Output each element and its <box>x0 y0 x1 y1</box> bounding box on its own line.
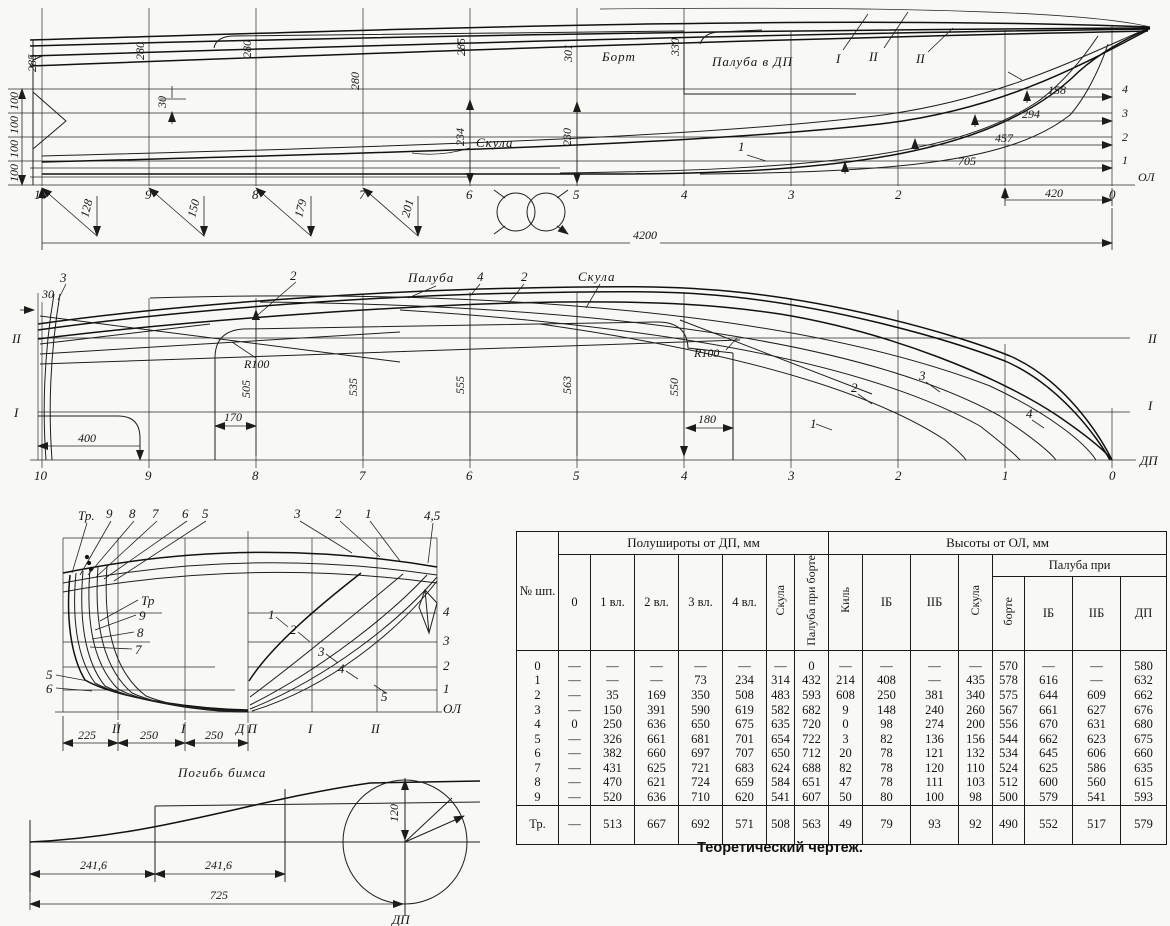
station-6: 6 <box>466 187 473 202</box>
offset-cell: — <box>863 650 911 673</box>
offset-cell: 326 <box>591 732 635 747</box>
col-header-3vl: 3 вл. <box>679 555 723 651</box>
offset-cell: 670 <box>1025 717 1073 732</box>
offset-cell: 625 <box>1025 761 1073 776</box>
offset-cell: 593 <box>795 688 829 703</box>
offset-cell: — <box>635 673 679 688</box>
offset-cell: 93 <box>911 805 959 844</box>
col-header-1b: IБ <box>863 555 911 651</box>
offset-cell: — <box>559 688 591 703</box>
dim-128: 128 <box>77 198 95 219</box>
offset-cell: 517 <box>1073 805 1121 844</box>
table-row: 9—52063671062054160750801009850057954159… <box>517 790 1167 805</box>
offset-cell: — <box>635 650 679 673</box>
offset-cell: 82 <box>863 732 911 747</box>
offset-cell: — <box>1025 650 1073 673</box>
hb-station-8: 8 <box>252 468 259 483</box>
radius-label-1: R100 <box>243 357 269 371</box>
bp-bottom-dp: Д П <box>234 721 259 736</box>
offset-cell: 620 <box>723 790 767 805</box>
offset-cell: — <box>591 673 635 688</box>
bp-bottom-I-left: I <box>180 721 186 736</box>
offset-cell: 659 <box>723 775 767 790</box>
bp-top-7: 7 <box>152 506 159 521</box>
offset-cell: — <box>559 703 591 718</box>
offset-cell: — <box>829 650 863 673</box>
station-3: 3 <box>787 187 795 202</box>
half-breadth-drawing: Палуба 4 2 Скула 2 3 30 R100 R100 505 53… <box>0 258 1170 494</box>
offset-cell: 78 <box>863 746 911 761</box>
dim-330: 330 <box>668 38 682 57</box>
col-header-deck-at-side-hw: Палуба при борте <box>795 555 829 651</box>
hb-station-4: 4 <box>681 468 688 483</box>
table-row: 3—15039159061958268291482402605676616276… <box>517 703 1167 718</box>
deck-subgroup-header: Палуба при <box>993 555 1167 577</box>
curve-label-4: 4 <box>1026 406 1033 421</box>
dim-170: 170 <box>224 410 242 424</box>
offsets-table-body: 0——————0————570——5801———7323431443221440… <box>517 650 1167 844</box>
offset-cell: 483 <box>767 688 795 703</box>
offset-cell: 627 <box>1073 703 1121 718</box>
bp-bottom-I-right: I <box>307 721 313 736</box>
label-paluba-dp: Палуба в ДП <box>711 54 794 69</box>
offset-cell: 661 <box>635 732 679 747</box>
curve-label-1: 1 <box>810 416 817 431</box>
left-butt-I: I <box>13 405 19 420</box>
offset-cell: — <box>559 805 591 844</box>
hb-station-1: 1 <box>1002 468 1009 483</box>
offset-cell: 470 <box>591 775 635 790</box>
offset-cell: 645 <box>1025 746 1073 761</box>
offset-cell: — <box>559 650 591 673</box>
offset-cell: 660 <box>635 746 679 761</box>
offset-cell: 79 <box>863 805 911 844</box>
offset-cell: 632 <box>1121 673 1167 688</box>
half-breadth-labels: Палуба 4 2 Скула 2 3 30 R100 R100 505 53… <box>11 268 1159 483</box>
col-header-0: 0 <box>559 555 591 651</box>
col-header-skula-h: Скула <box>959 555 993 651</box>
offset-cell: 593 <box>1121 790 1167 805</box>
sheer-labels: 285 280 280 280 285 301 330 100 100 100 … <box>7 38 1155 242</box>
offset-cell: 381 <box>911 688 959 703</box>
offset-cell: 625 <box>635 761 679 776</box>
right-butt-II: II <box>1147 331 1157 346</box>
dim-201: 201 <box>398 198 416 219</box>
col-header-1vl: 1 вл. <box>591 555 635 651</box>
col-header-deck-1b: IБ <box>1025 577 1073 650</box>
offset-cell: 490 <box>993 805 1025 844</box>
station-cell: 5 <box>517 732 559 747</box>
station-0: 0 <box>1109 187 1116 202</box>
offset-cell: 240 <box>911 703 959 718</box>
label-4: 4 <box>477 269 484 284</box>
col-header-deck-2b: IIБ <box>1073 577 1121 650</box>
offset-cell: 250 <box>863 688 911 703</box>
figure-caption: Теоретический чертеж. <box>600 840 960 856</box>
camber-dim-3: 725 <box>210 888 228 902</box>
station-cell: 2 <box>517 688 559 703</box>
station-column-header: № шп. <box>517 532 559 651</box>
offset-cell: 169 <box>635 688 679 703</box>
dim-550: 550 <box>667 378 681 396</box>
offset-cell: 111 <box>911 775 959 790</box>
offset-cell: 150 <box>591 703 635 718</box>
offset-cell: 47 <box>829 775 863 790</box>
offset-cell: 675 <box>1121 732 1167 747</box>
offset-cell: 635 <box>1121 761 1167 776</box>
offset-cell: 200 <box>959 717 993 732</box>
offset-cell: 608 <box>829 688 863 703</box>
table-group-header-row: № шп. Полушироты от ДП, мм Высоты от ОЛ,… <box>517 532 1167 555</box>
bp-top-8: 8 <box>129 506 136 521</box>
dim-179: 179 <box>291 198 309 219</box>
table-row: 7—43162572168362468882781201105246255866… <box>517 761 1167 776</box>
offset-cell: 688 <box>795 761 829 776</box>
label-skula-plan: Скула <box>578 269 616 284</box>
dim-555: 555 <box>453 376 467 394</box>
table-row: 5—32666168170165472238213615654466262367… <box>517 732 1167 747</box>
offset-cell: 578 <box>993 673 1025 688</box>
offset-cell: 720 <box>795 717 829 732</box>
offset-cell: 609 <box>1073 688 1121 703</box>
offset-cell: 35 <box>591 688 635 703</box>
offset-cell: 520 <box>591 790 635 805</box>
bp-lower-6: 6 <box>46 681 53 696</box>
bp-wl-2: 2 <box>443 658 450 673</box>
dim-150: 150 <box>184 198 202 219</box>
offset-cell: 644 <box>1025 688 1073 703</box>
wl-label-1: 1 <box>1122 153 1128 167</box>
offset-cell: 692 <box>679 805 723 844</box>
offset-cell: 701 <box>723 732 767 747</box>
bp-curve-2: 2 <box>290 622 297 637</box>
offset-cell: 78 <box>863 761 911 776</box>
col-header-keel-label: Киль <box>839 587 852 613</box>
offset-cell: 500 <box>993 790 1025 805</box>
offset-cell: 103 <box>959 775 993 790</box>
bp-wl-ol: ОЛ <box>443 701 462 716</box>
dim-280a: 280 <box>133 42 147 60</box>
offset-cell: 570 <box>993 650 1025 673</box>
offset-cell: 0 <box>795 650 829 673</box>
table-row: 4025063665067563572009827420055667063168… <box>517 717 1167 732</box>
offset-cell: 73 <box>679 673 723 688</box>
offset-cell: 156 <box>959 732 993 747</box>
offset-cell: 132 <box>959 746 993 761</box>
offset-cell: 524 <box>993 761 1025 776</box>
offset-cell: 580 <box>1121 650 1167 673</box>
offset-cell: 513 <box>591 805 635 844</box>
bp-dim-250a: 250 <box>140 728 158 742</box>
offset-cell: 234 <box>723 673 767 688</box>
hb-station-0: 0 <box>1109 468 1116 483</box>
label-2: 2 <box>521 269 528 284</box>
hb-station-7: 7 <box>359 468 366 483</box>
camber-lines <box>30 778 480 916</box>
offset-cell: — <box>559 775 591 790</box>
offset-cell: 616 <box>1025 673 1073 688</box>
offset-cell: 98 <box>863 717 911 732</box>
offset-cell: 50 <box>829 790 863 805</box>
col-header-deck-dp: ДП <box>1121 577 1167 650</box>
offset-cell: 582 <box>767 703 795 718</box>
label-skula-sheer: Скула <box>476 135 514 150</box>
label-curve3-left: 3 <box>59 270 67 285</box>
offset-cell: 631 <box>1073 717 1121 732</box>
bp-inner-8: 8 <box>137 625 144 640</box>
offset-cell: 80 <box>863 790 911 805</box>
col-header-skula-hw-label: Скула <box>774 585 787 615</box>
offset-cell: 697 <box>679 746 723 761</box>
bp-curve-3: 3 <box>317 644 325 659</box>
label-bort: Борт <box>601 49 636 64</box>
offset-cell: 431 <box>591 761 635 776</box>
dim-4200: 4200 <box>633 228 657 242</box>
dim-100b: 100 <box>7 116 21 134</box>
offset-cell: 552 <box>1025 805 1073 844</box>
offset-cell: 571 <box>723 805 767 844</box>
offset-cell: 78 <box>863 775 911 790</box>
offset-cell: 382 <box>591 746 635 761</box>
baseline-label: ОЛ <box>1138 170 1155 184</box>
dim-563: 563 <box>560 376 574 394</box>
body-plan-drawing: Тр. 9 8 7 6 5 3 2 1 4,5 Тр 9 8 7 5 6 1 2… <box>0 495 500 795</box>
beam-camber-drawing: Погибь бимса 241,6 241,6 725 120 ДП <box>0 762 500 926</box>
camber-title: Погибь бимса <box>177 765 266 780</box>
bp-wl-4: 4 <box>443 604 450 619</box>
col-header-deck-at-side-hw-label: Палуба при борте <box>805 555 818 646</box>
dim-285b: 285 <box>454 38 468 56</box>
bp-top-45: 4,5 <box>424 508 441 523</box>
dim-294: 294 <box>1022 107 1040 121</box>
offset-cell: 98 <box>959 790 993 805</box>
offset-cell: 623 <box>1073 732 1121 747</box>
offset-cell: 636 <box>635 790 679 805</box>
curve-label-2: 2 <box>851 380 858 395</box>
hb-station-2: 2 <box>895 468 902 483</box>
dim-400: 400 <box>78 431 96 445</box>
offset-cell: — <box>679 650 723 673</box>
camber-dim-1: 241,6 <box>80 858 107 872</box>
label-butt-II: II <box>868 49 878 64</box>
offset-cell: 541 <box>767 790 795 805</box>
bp-dim-250b: 250 <box>205 728 223 742</box>
col-header-2b: IIБ <box>911 555 959 651</box>
offset-cell: — <box>1073 650 1121 673</box>
label-curve2-left: 2 <box>290 268 297 283</box>
col-header-skula-h-label: Скула <box>969 585 982 615</box>
dim-285a: 285 <box>25 54 39 72</box>
dim-301: 301 <box>561 44 575 63</box>
station-7: 7 <box>359 187 366 202</box>
offset-cell: 110 <box>959 761 993 776</box>
dim-158: 158 <box>1048 83 1066 97</box>
offset-cell: 121 <box>911 746 959 761</box>
sheer-hull-lines <box>30 8 1150 185</box>
offset-cell: 586 <box>1073 761 1121 776</box>
offset-cell: 541 <box>1073 790 1121 805</box>
station-cell: 6 <box>517 746 559 761</box>
bp-wl-3: 3 <box>442 633 450 648</box>
bp-lower-5: 5 <box>46 667 53 682</box>
offset-cell: 556 <box>993 717 1025 732</box>
offset-cell: — <box>591 650 635 673</box>
col-header-4vl: 4 вл. <box>723 555 767 651</box>
col-header-borte: борте <box>993 577 1025 650</box>
offset-cell: 435 <box>959 673 993 688</box>
table-row: 6—38266069770765071220781211325346456066… <box>517 746 1167 761</box>
offset-cell: 624 <box>767 761 795 776</box>
offset-cell: 136 <box>911 732 959 747</box>
dim-535: 535 <box>346 378 360 396</box>
offset-cell: — <box>559 761 591 776</box>
offset-cell: 0 <box>559 717 591 732</box>
offset-cell: — <box>723 650 767 673</box>
table-row: 8—47062172465958465147781111035126005606… <box>517 775 1167 790</box>
offset-cell: — <box>911 650 959 673</box>
offset-cell: 710 <box>679 790 723 805</box>
offset-cell: 100 <box>911 790 959 805</box>
half-breadth-grid <box>30 292 1136 468</box>
station-cell: 4 <box>517 717 559 732</box>
offset-cell: — <box>559 746 591 761</box>
offset-cell: 250 <box>591 717 635 732</box>
station-cell: 0 <box>517 650 559 673</box>
dim-420: 420 <box>1045 186 1063 200</box>
dim-100a: 100 <box>7 92 21 110</box>
label-wl1-curve: 1 <box>738 139 745 154</box>
label-butt-II2: II <box>915 51 925 66</box>
offset-cell: 92 <box>959 805 993 844</box>
offset-cell: 0 <box>829 717 863 732</box>
table-subheader-row: 0 1 вл. 2 вл. 3 вл. 4 вл. Скула Палуба п… <box>517 555 1167 577</box>
theoretical-drawing-sheet: 285 280 280 280 285 301 330 100 100 100 … <box>0 0 1170 926</box>
table-row: 1———73234314432214408—435578616—632 <box>517 673 1167 688</box>
offset-cell: — <box>1073 673 1121 688</box>
camber-labels: Погибь бимса 241,6 241,6 725 120 ДП <box>80 765 411 926</box>
bp-bottom-II-right: II <box>370 721 380 736</box>
bp-wl-1: 1 <box>443 681 450 696</box>
dp-label-plan: ДП <box>1138 453 1159 468</box>
offset-cell: 408 <box>863 673 911 688</box>
offset-cell: 563 <box>795 805 829 844</box>
offset-cell: 682 <box>795 703 829 718</box>
camber-dim-2: 241,6 <box>205 858 232 872</box>
offset-cell: 650 <box>767 746 795 761</box>
offset-cell: 214 <box>829 673 863 688</box>
bp-curve-5: 5 <box>381 689 388 704</box>
bp-top-1: 1 <box>365 506 372 521</box>
offset-cell: 575 <box>993 688 1025 703</box>
dim-505: 505 <box>239 380 253 398</box>
label-paluba: Палуба <box>407 270 454 285</box>
offset-cell: 606 <box>1073 746 1121 761</box>
offset-cell: 600 <box>1025 775 1073 790</box>
offset-cell: 432 <box>795 673 829 688</box>
col-header-keel: Киль <box>829 555 863 651</box>
offset-cell: 314 <box>767 673 795 688</box>
offset-cell: 120 <box>911 761 959 776</box>
offset-cell: 712 <box>795 746 829 761</box>
dim-30-sheer: 30 <box>155 96 169 109</box>
station-9: 9 <box>145 187 152 202</box>
offset-cell: — <box>911 673 959 688</box>
dim-30-plan: 30 <box>41 287 54 301</box>
hb-station-6: 6 <box>466 468 473 483</box>
station-10: 10 <box>34 187 48 202</box>
offset-cell: 508 <box>723 688 767 703</box>
dim-280c: 280 <box>348 72 362 90</box>
offset-cell: 680 <box>1121 717 1167 732</box>
offset-cell: 619 <box>723 703 767 718</box>
offsets-table: № шп. Полушироты от ДП, мм Высоты от ОЛ,… <box>516 531 1167 845</box>
offset-cell: 148 <box>863 703 911 718</box>
station-cell: Тр. <box>517 805 559 844</box>
offset-cell: 260 <box>959 703 993 718</box>
right-butt-I: I <box>1147 398 1153 413</box>
table-row-transom: Тр.—513667692571508563497993924905525175… <box>517 805 1167 844</box>
station-cell: 3 <box>517 703 559 718</box>
curve-label-3: 3 <box>918 368 926 383</box>
offset-cell: 544 <box>993 732 1025 747</box>
section-symbol-icon <box>494 190 568 234</box>
left-butt-II: II <box>11 331 21 346</box>
table-row: 2—35169350508483593608250381340575644609… <box>517 688 1167 703</box>
offset-cell: 676 <box>1121 703 1167 718</box>
bp-curve-4: 4 <box>338 661 345 676</box>
bp-top-6: 6 <box>182 506 189 521</box>
offset-cell: 508 <box>767 805 795 844</box>
col-header-skula-hw: Скула <box>767 555 795 651</box>
dim-100d: 100 <box>7 164 21 182</box>
offset-cell: 560 <box>1073 775 1121 790</box>
offset-cell: 675 <box>723 717 767 732</box>
offset-cell: 681 <box>679 732 723 747</box>
hb-station-5: 5 <box>573 468 580 483</box>
bp-inner-7: 7 <box>135 642 142 657</box>
offset-cell: 590 <box>679 703 723 718</box>
offset-cell: 636 <box>635 717 679 732</box>
radius-label-2: R100 <box>693 346 719 360</box>
offset-cell: — <box>559 790 591 805</box>
offset-cell: 651 <box>795 775 829 790</box>
sheer-plan-drawing: 285 280 280 280 285 301 330 100 100 100 … <box>0 0 1170 258</box>
offset-cell: 650 <box>679 717 723 732</box>
offset-cell: 683 <box>723 761 767 776</box>
offset-cell: 615 <box>1121 775 1167 790</box>
bp-bottom-II-left: II <box>111 721 121 736</box>
bp-top-5: 5 <box>202 506 209 521</box>
offset-cell: 707 <box>723 746 767 761</box>
offset-cell: 721 <box>679 761 723 776</box>
wl-label-2: 2 <box>1122 130 1128 144</box>
station-2: 2 <box>895 187 902 202</box>
dim-234: 234 <box>453 128 467 146</box>
dim-457: 457 <box>995 131 1014 145</box>
offset-cell: 722 <box>795 732 829 747</box>
offset-cell: 661 <box>1025 703 1073 718</box>
bp-top-tr: Тр. <box>78 508 95 523</box>
offset-cell: 584 <box>767 775 795 790</box>
table-row: 0——————0————570——580 <box>517 650 1167 673</box>
offset-cell: 621 <box>635 775 679 790</box>
col-header-2vl: 2 вл. <box>635 555 679 651</box>
offset-cell: 660 <box>1121 746 1167 761</box>
camber-radius: 120 <box>387 804 401 822</box>
offset-cell: 579 <box>1025 790 1073 805</box>
dim-100c: 100 <box>7 140 21 158</box>
offset-cell: 391 <box>635 703 679 718</box>
